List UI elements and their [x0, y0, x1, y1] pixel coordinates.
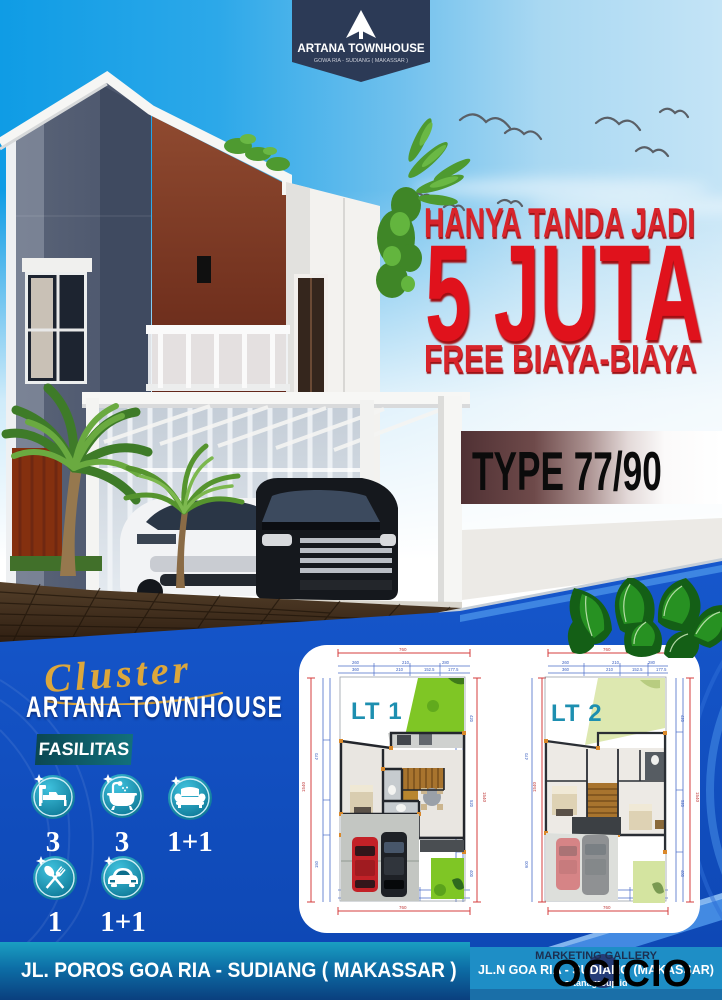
svg-text:LT 1: LT 1	[351, 698, 403, 725]
svg-text:760: 760	[603, 905, 611, 910]
svg-text:3: 3	[46, 826, 61, 858]
svg-text:260: 260	[352, 660, 360, 665]
svg-text:520: 520	[469, 800, 474, 808]
svg-text:420: 420	[680, 715, 685, 723]
svg-text:600: 600	[524, 860, 529, 868]
svg-text:1540: 1540	[301, 781, 306, 792]
svg-text:1: 1	[48, 906, 63, 935]
svg-text:360: 360	[352, 667, 360, 672]
svg-text:GOWA RIA - SUDIANG ( MAKASSAR: GOWA RIA - SUDIANG ( MAKASSAR )	[314, 58, 408, 64]
svg-text:LT 2: LT 2	[551, 700, 603, 727]
svg-text:177.5: 177.5	[448, 667, 459, 672]
svg-text:1+1: 1+1	[167, 826, 213, 858]
svg-text:210: 210	[606, 667, 614, 672]
svg-text:400: 400	[680, 870, 685, 878]
svg-text:280: 280	[648, 660, 656, 665]
svg-text:400: 400	[469, 870, 474, 878]
svg-text:1540: 1540	[532, 781, 537, 792]
svg-text:1+1: 1+1	[100, 906, 146, 935]
svg-text:470: 470	[314, 752, 319, 760]
svg-text:360: 360	[562, 667, 570, 672]
svg-text:150: 150	[314, 860, 319, 868]
svg-text:210: 210	[612, 660, 620, 665]
svg-text:470: 470	[524, 752, 529, 760]
svg-text:520: 520	[680, 800, 685, 808]
svg-text:210: 210	[396, 667, 404, 672]
svg-text:420: 420	[469, 715, 474, 723]
svg-text:280: 280	[442, 660, 450, 665]
svg-text:210: 210	[402, 660, 410, 665]
svg-text:1540: 1540	[695, 792, 700, 803]
svg-text:3: 3	[115, 826, 130, 858]
svg-text:177.5: 177.5	[656, 667, 667, 672]
svg-text:152.5: 152.5	[632, 667, 643, 672]
svg-text:760: 760	[399, 647, 407, 652]
svg-text:152.5: 152.5	[424, 667, 435, 672]
svg-text:760: 760	[399, 905, 407, 910]
svg-text:1540: 1540	[482, 792, 487, 803]
svg-text:ARTANA TOWNHOUSE: ARTANA TOWNHOUSE	[297, 42, 425, 55]
svg-text:260: 260	[562, 660, 570, 665]
